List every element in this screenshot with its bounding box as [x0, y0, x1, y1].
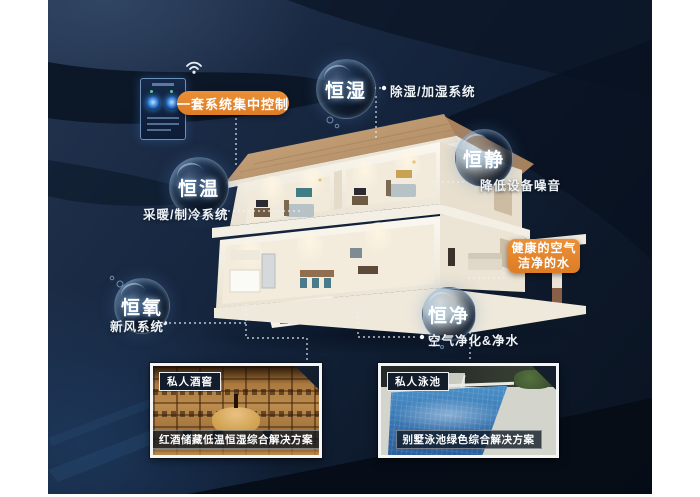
pool-card: 私人泳池 别墅泳池绿色综合解决方案: [378, 363, 559, 458]
device-dial-left: [146, 96, 160, 110]
wine-card-caption: 红酒储藏低温恒湿综合解决方案: [152, 430, 320, 449]
label-dehumidify-humidify-system: 除湿/加湿系统: [390, 81, 475, 100]
dark-panel-background: 一套系统集中控制 健康的空气 洁净的水 恒湿 恒静 恒温 恒氧 恒净 除湿/加湿…: [48, 0, 652, 494]
pool-card-caption: 别墅泳池绿色综合解决方案: [396, 430, 542, 449]
wine-cellar-card: 私人酒窖 红酒储藏低温恒湿综合解决方案: [150, 363, 322, 458]
device-led: [150, 90, 153, 93]
bubble-quiet-text: 恒静: [463, 145, 505, 172]
label-heating-cooling-system: 采暖/制冷系统: [143, 204, 228, 223]
highlight-line1: 健康的空气: [511, 241, 576, 256]
label-reduce-equipment-noise: 降低设备噪音: [480, 175, 561, 194]
device-screen-row: [147, 117, 179, 119]
central-control-label: 一套系统集中控制: [177, 91, 289, 115]
card-corner-ribbon: [295, 366, 319, 390]
wine-card-tag: 私人酒窖: [159, 372, 221, 391]
wine-tasting-table: [212, 407, 260, 431]
device-led: [170, 90, 173, 93]
bubble-humidity-text: 恒湿: [325, 76, 367, 103]
label-air-purification-water-purification: 空气净化&净水: [428, 330, 519, 349]
wifi-icon: [185, 60, 203, 75]
bubble-purity-text: 恒净: [428, 301, 470, 328]
pool-card-tag: 私人泳池: [387, 372, 449, 391]
bubble-constant-humidity: 恒湿: [316, 59, 376, 119]
central-control-label-text: 一套系统集中控制: [177, 94, 289, 113]
infographic-canvas: 一套系统集中控制 健康的空气 洁净的水 恒湿 恒静 恒温 恒氧 恒净 除湿/加湿…: [0, 0, 700, 497]
highlight-line2: 洁净的水: [518, 256, 570, 271]
device-screen-row: [147, 129, 171, 131]
device-screen-titlebar: [152, 83, 174, 86]
label-fresh-air-system: 新风系统: [110, 316, 164, 335]
bubble-temperature-text: 恒温: [178, 174, 220, 201]
healthy-air-clean-water-box: 健康的空气 洁净的水: [508, 239, 580, 273]
device-screen-row: [147, 123, 179, 125]
card-corner-ribbon: [532, 366, 556, 390]
wine-bottle: [234, 394, 238, 408]
